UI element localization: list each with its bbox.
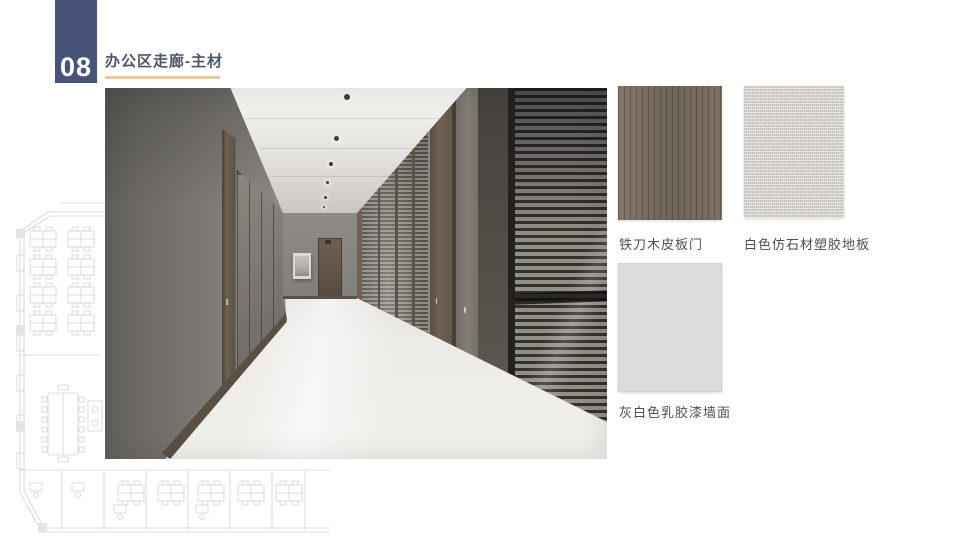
page-number-tab: 08 [55,0,97,83]
door-handle [464,307,466,313]
material-label-wood-veneer: 铁刀木皮板门 [619,234,703,253]
artwork-frame [293,253,311,280]
downlight [334,136,339,141]
end-wall-baseboard [283,296,357,299]
material-swatch-vinyl-floor [744,86,844,218]
corridor-left-wall [105,88,287,459]
page-number: 08 [60,54,92,81]
door-handle [436,298,438,304]
artwork-image [295,256,309,276]
right-dark-panel [478,88,508,459]
downlight [329,162,333,166]
right-wood-door [430,88,452,459]
corridor-end-wall [283,213,357,299]
title-underline [105,76,220,79]
left-wall-baseboard [155,303,288,459]
glass-mullion [378,88,380,459]
end-wall-door [318,238,342,299]
material-swatch-wood-veneer [618,86,722,220]
door-sign [325,240,331,244]
ceiling-seam [245,118,453,119]
ceiling-seam [261,148,426,149]
glass-mullion [395,88,397,459]
material-label-vinyl-floor: 白色仿石材塑胶地板 [744,234,870,253]
glass-mullion [412,88,414,459]
corridor-floor [105,199,607,459]
right-wall-strip [428,88,430,459]
material-label-latex-paint: 灰白色乳胶漆墙面 [619,402,731,421]
left-door-handle [226,299,229,304]
right-wood-frame [357,88,362,459]
material-swatch-latex-paint [618,263,722,392]
glass-black-frame [508,88,515,459]
blinds-rail [515,290,607,304]
page-title: 办公区走廊-主材 [105,50,223,71]
left-wall-door [222,129,236,394]
downlight [323,206,325,208]
corridor-photo [105,88,607,459]
downlight [344,94,350,100]
right-glass-partition-far [362,88,428,459]
corridor-ceiling [231,88,467,213]
right-gray-door [456,88,478,459]
left-glass-partition [237,170,287,377]
ceiling-seam [273,176,403,177]
right-glass-partition-near [515,88,607,459]
downlight [326,181,329,184]
downlight [324,196,327,199]
floor-reflection [105,199,607,459]
corridor-right-wall [357,88,607,459]
right-door-frame [452,88,455,459]
presentation-slide: 08 办公区走廊-主材 [0,0,960,540]
